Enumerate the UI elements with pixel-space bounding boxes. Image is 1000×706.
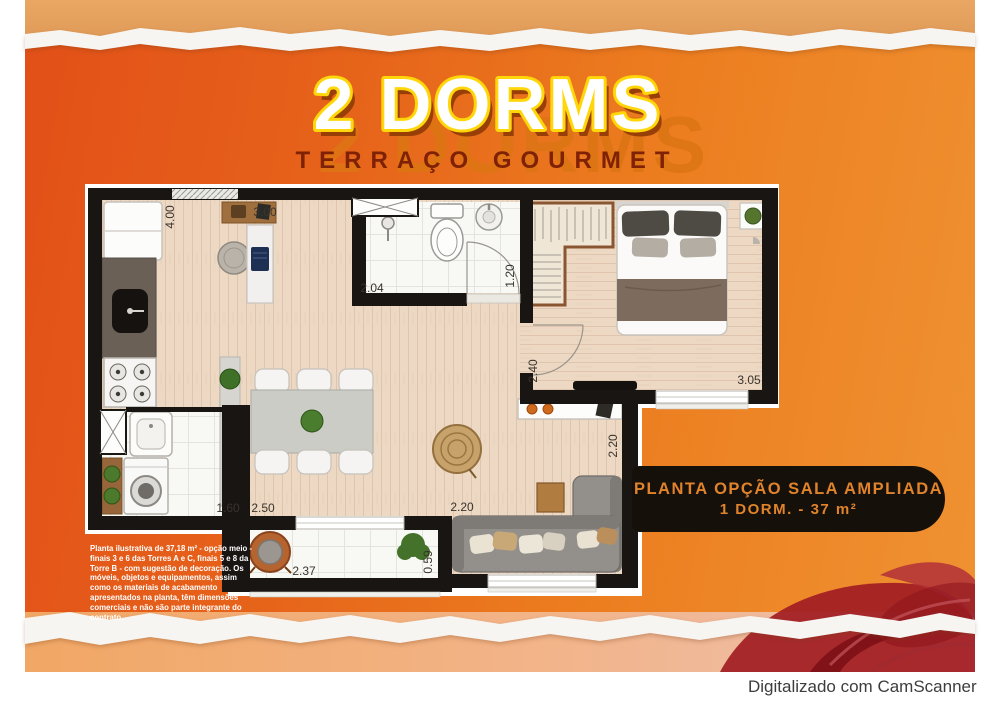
dim-bathroom-width: 2.04 bbox=[360, 281, 383, 295]
plan-option-badge: PLANTA OPÇÃO SALA AMPLIADA 1 DORM. - 37 … bbox=[632, 466, 945, 532]
nightstand-plant bbox=[745, 208, 761, 224]
dim-living-width: 3.00 bbox=[253, 205, 276, 219]
badge-line1: PLANTA OPÇÃO SALA AMPLIADA bbox=[634, 480, 943, 499]
side-table bbox=[537, 483, 564, 512]
bedroom-tv bbox=[573, 381, 637, 390]
headline-text: 2 DORMS bbox=[313, 65, 662, 145]
dim-bedroom-entry: 2.40 bbox=[526, 359, 540, 382]
dim-terrace-width: 2.37 bbox=[292, 564, 315, 578]
headline-subtitle: TERRAÇO GOURMET bbox=[296, 147, 679, 175]
toilet bbox=[431, 204, 463, 261]
bed-blanket bbox=[617, 279, 727, 321]
laptop bbox=[251, 247, 269, 271]
table-plant bbox=[301, 410, 323, 432]
dim-laundry-width: 1.60 bbox=[216, 501, 239, 515]
bathroom-sink bbox=[476, 204, 502, 230]
plant bbox=[220, 369, 240, 389]
dim-bathroom-depth: 1.20 bbox=[503, 264, 517, 287]
dim-bedroom-width: 3.05 bbox=[737, 373, 760, 387]
dim-dining-width: 2.50 bbox=[251, 501, 274, 515]
plant bbox=[104, 466, 120, 482]
dim-living-side-depth: 2.20 bbox=[606, 434, 620, 457]
dim-terrace-depth: 0.59 bbox=[421, 550, 435, 573]
dining-chairs-top bbox=[255, 369, 373, 393]
kitchen bbox=[102, 202, 162, 407]
legal-disclaimer: Planta ilustrativa de 37,18 m² - opção m… bbox=[90, 544, 253, 623]
dining-chairs-bottom bbox=[255, 450, 373, 474]
dim-kitchen-depth: 4.00 bbox=[163, 205, 177, 228]
scanned-flyer-page: 2 DORMS 2 DORMS 2 DORMS TERRAÇO GOURMET bbox=[0, 0, 1000, 706]
camscanner-watermark: Digitalizado com CamScanner bbox=[748, 677, 977, 697]
wall-hatch bbox=[172, 189, 238, 199]
plant bbox=[104, 488, 120, 504]
desk-chair bbox=[218, 242, 250, 274]
dim-sofa-area-width: 2.20 bbox=[450, 500, 473, 514]
badge-line2: 1 DORM. - 37 m² bbox=[720, 501, 858, 518]
